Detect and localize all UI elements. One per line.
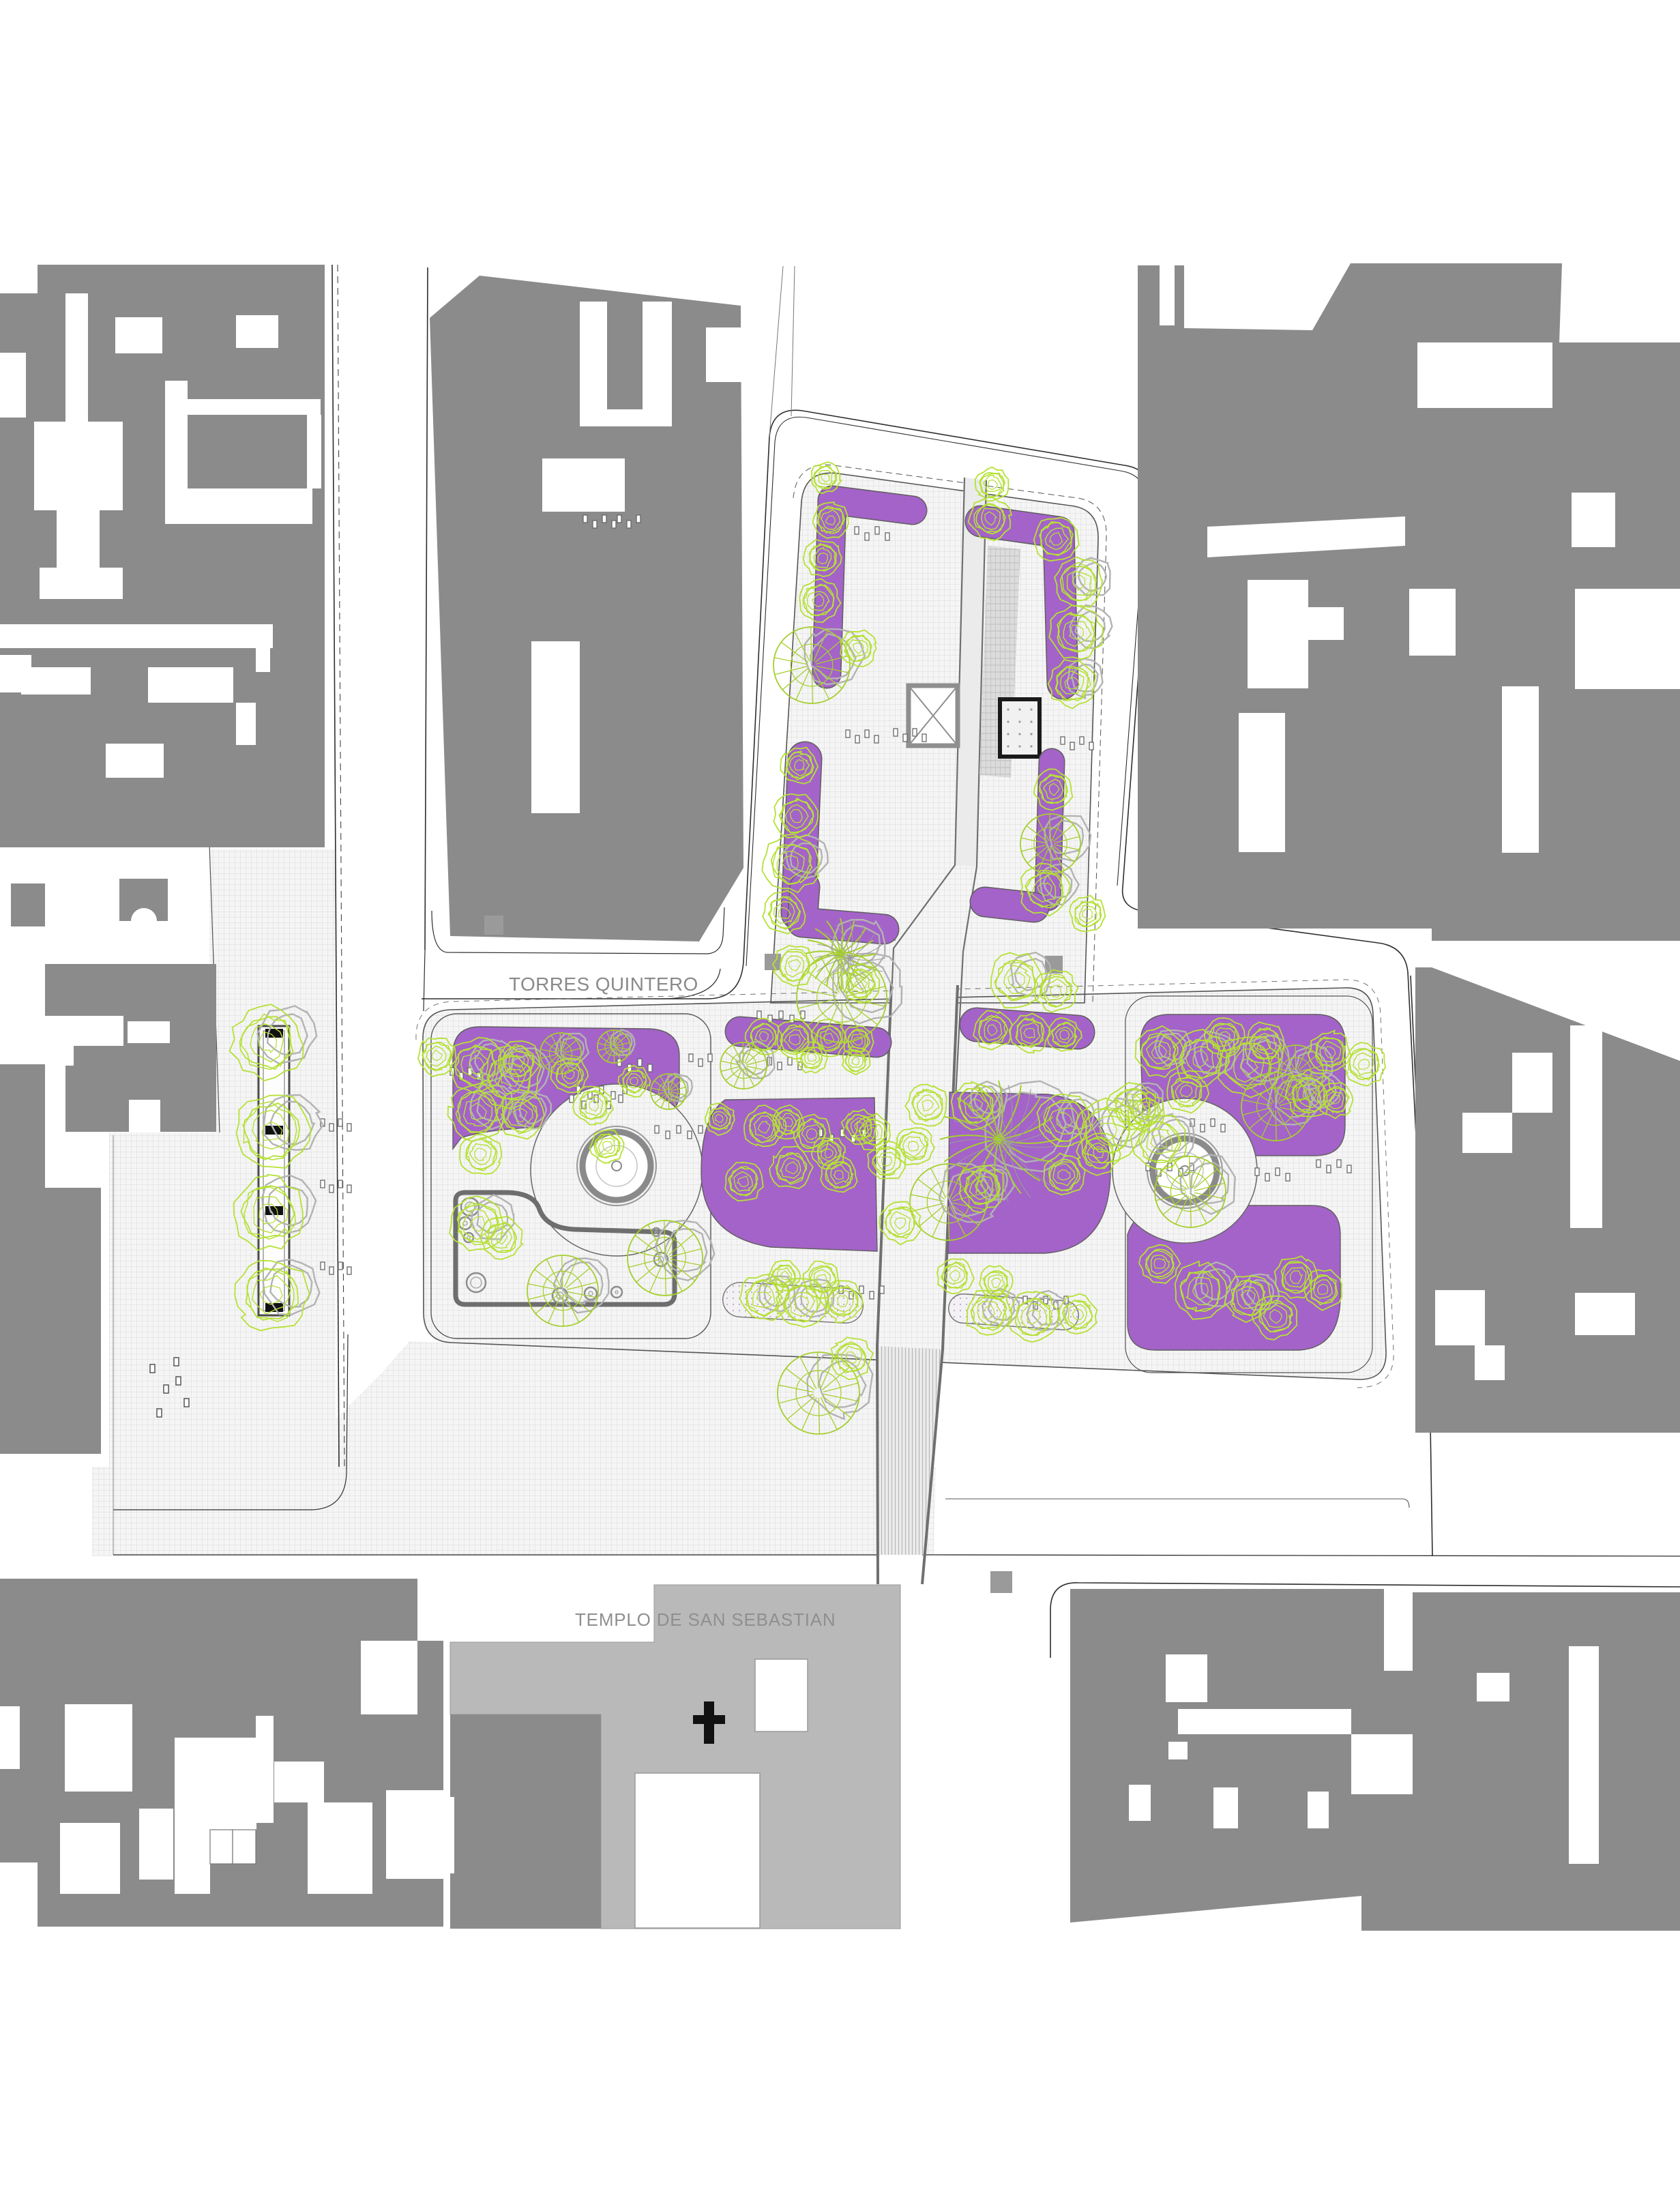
svg-text:TEMPLO DE SAN SEBASTIAN: TEMPLO DE SAN SEBASTIAN: [575, 1609, 836, 1630]
svg-text:TORRES QUINTERO: TORRES QUINTERO: [509, 974, 698, 995]
